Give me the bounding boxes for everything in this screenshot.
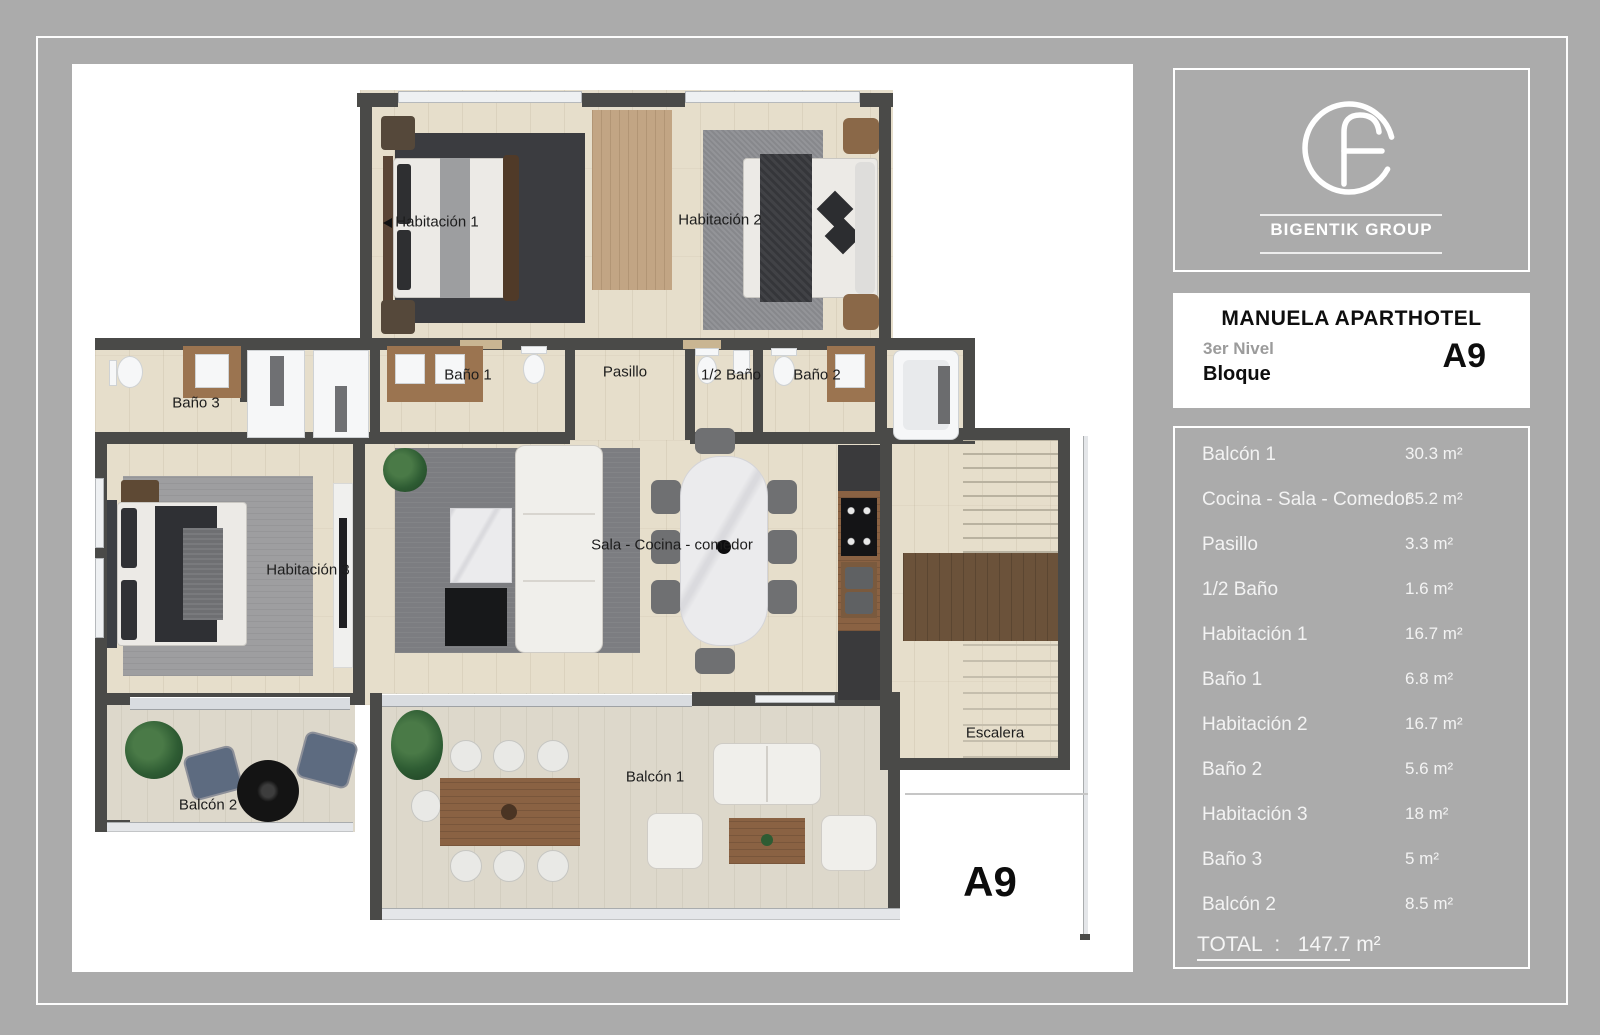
outdoor-dining-chair-1 xyxy=(450,740,482,772)
area-row-value: 3.3 m² xyxy=(1405,534,1453,554)
wall-wing-left xyxy=(360,93,372,345)
wall-bano1-right xyxy=(565,350,575,440)
room-label-escalera: Escalera xyxy=(966,725,1024,742)
bed3-throw xyxy=(183,528,223,620)
area-row-label: Baño 1 xyxy=(1202,669,1262,691)
outdoor-dining-chair-6 xyxy=(537,850,569,882)
toilet-bano2-bowl xyxy=(773,356,795,386)
wall-hab3-right xyxy=(353,440,365,693)
area-row-value: 16.7 m² xyxy=(1405,624,1463,644)
project-title: MANUELA APARTHOTEL xyxy=(1175,307,1528,331)
room-label-balcon2: Balcón 2 xyxy=(179,797,237,814)
room-label-bano3: Baño 3 xyxy=(172,395,220,412)
area-table: Balcón 1 30.3 m² Cocina - Sala - Comedor… xyxy=(1173,426,1530,969)
area-row-habitacion3: Habitación 3 18 m² xyxy=(1175,804,1528,828)
plant-balcon2 xyxy=(125,721,183,779)
room-label-bano2: Baño 2 xyxy=(793,367,841,384)
room-label-bano1: Baño 1 xyxy=(444,367,492,384)
area-row-label: Habitación 2 xyxy=(1202,714,1308,736)
kitchen-counter-top xyxy=(838,445,880,491)
window-hab3-b xyxy=(95,558,104,638)
dining-chair-right-1 xyxy=(767,480,797,514)
level-label: 3er Nivel xyxy=(1203,339,1274,359)
chair-hab2-top xyxy=(843,118,879,154)
sliding-door-balcon1 xyxy=(382,694,692,707)
wall-pasillo-right xyxy=(685,350,695,440)
brand-logo-box: BIGENTIK GROUP xyxy=(1173,68,1530,272)
area-total-unit: m² xyxy=(1350,933,1380,956)
sofa-cushion-line-b xyxy=(523,580,595,582)
rail-balcon1 xyxy=(382,908,900,920)
logo-rule-bottom xyxy=(1260,252,1442,254)
logo-rule-top xyxy=(1260,214,1442,216)
coffee-table-marble xyxy=(450,508,512,583)
title-block: MANUELA APARTHOTEL 3er Nivel Bloque A9 xyxy=(1173,293,1530,408)
area-row-value: 30.3 m² xyxy=(1405,444,1463,464)
sofa-cushion-line-a xyxy=(523,513,595,515)
wall-stairs-right xyxy=(1058,428,1070,770)
rail-exterior-right xyxy=(1083,436,1088,936)
door-marker-hab1 xyxy=(383,218,392,228)
sofa-sala xyxy=(515,445,603,653)
outdoor-dining-chair-2 xyxy=(493,740,525,772)
nightstand-hab1-bottom xyxy=(381,300,415,334)
wall-balcon2-left xyxy=(95,700,107,795)
dining-chair-right-3 xyxy=(767,580,797,614)
toilet-bano3-bowl xyxy=(117,356,143,388)
plant-balcon1 xyxy=(391,710,443,780)
stairs-landing-wood xyxy=(903,553,1058,641)
area-row-label: Habitación 3 xyxy=(1202,804,1308,826)
nightstand-hab1-top xyxy=(381,116,415,150)
dining-chair-right-2 xyxy=(767,530,797,564)
shower-1-towel xyxy=(270,356,284,406)
room-label-balcon1: Balcón 1 xyxy=(626,769,684,786)
rail-balcon2 xyxy=(107,822,353,832)
outdoor-sofa-split xyxy=(766,746,768,802)
room-label-pasillo: Pasillo xyxy=(603,364,647,381)
outdoor-coffee-plant xyxy=(761,834,773,846)
toilet-bano2-tank xyxy=(771,348,797,356)
round-table-decor xyxy=(257,780,279,802)
area-row-value: 8.5 m² xyxy=(1405,894,1453,914)
area-row-label: Pasillo xyxy=(1202,534,1258,556)
area-row-label: Cocina - Sala - Comedor xyxy=(1202,489,1411,511)
bed1-footbench xyxy=(503,155,519,301)
area-row-value: 5.6 m² xyxy=(1405,759,1453,779)
area-row-balcon1: Balcón 1 30.3 m² xyxy=(1175,444,1528,468)
area-total-underlined: TOTAL : 147.7 xyxy=(1197,933,1350,961)
kitchen-sink-basin-a xyxy=(845,567,873,589)
kitchen-stove xyxy=(841,498,877,556)
bed2-blanket xyxy=(760,154,812,302)
area-total-value: 147.7 xyxy=(1298,933,1351,956)
wall-bano2-right xyxy=(875,350,887,440)
floor-plan: Habitación 1 Habitación 2 Baño 1 Pasillo… xyxy=(95,88,1100,944)
drawing-sheet: Habitación 1 Habitación 2 Baño 1 Pasillo… xyxy=(72,64,1133,972)
window-balcon1 xyxy=(755,695,835,703)
area-row-value: 35.2 m² xyxy=(1405,489,1463,509)
area-row-bano1: Baño 1 6.8 m² xyxy=(1175,669,1528,693)
wall-balcon1-left xyxy=(370,693,382,920)
room-label-habitacion2: Habitación 2 xyxy=(678,212,761,229)
wall-mediobano-right xyxy=(753,350,763,440)
wall-wing-right xyxy=(879,93,891,345)
unit-code-label: A9 xyxy=(963,858,1017,906)
outdoor-dining-chair-7 xyxy=(411,790,441,822)
outdoor-armchair-left xyxy=(647,813,703,869)
toilet-bano3-tank xyxy=(109,360,117,386)
kitchen-counter-bottom xyxy=(838,631,880,700)
bed3-pillow-bottom xyxy=(121,580,137,640)
area-row-habitacion2: Habitación 2 16.7 m² xyxy=(1175,714,1528,738)
area-row-value: 6.8 m² xyxy=(1405,669,1453,689)
area-row-label: Balcón 1 xyxy=(1202,444,1276,466)
outdoor-table-centerpiece xyxy=(501,804,517,820)
wall-top-mid xyxy=(582,93,685,107)
window-hab3-a xyxy=(95,478,104,548)
window-habitacion1 xyxy=(398,91,582,103)
area-row-value: 5 m² xyxy=(1405,849,1439,869)
outdoor-armchair-right xyxy=(821,815,877,871)
plan-sheet-page: { "brand": { "name": "BIGENTIK GROUP" },… xyxy=(0,0,1600,1035)
rail-end-tick xyxy=(1080,934,1090,940)
wall-balcon1-right xyxy=(888,693,900,920)
area-row-mediobano: 1/2 Baño 1.6 m² xyxy=(1175,579,1528,603)
outdoor-dining-chair-3 xyxy=(537,740,569,772)
dining-chair-bottom xyxy=(695,648,735,674)
bed2-bolster xyxy=(855,162,875,294)
bathtub-towel xyxy=(938,366,950,424)
area-row-bano3: Baño 3 5 m² xyxy=(1175,849,1528,873)
area-row-label: Baño 2 xyxy=(1202,759,1262,781)
sink-bano3 xyxy=(195,354,229,388)
bed3-pillow-top xyxy=(121,508,137,568)
room-label-mediobano: 1/2 Baño xyxy=(701,367,761,384)
area-row-habitacion1: Habitación 1 16.7 m² xyxy=(1175,624,1528,648)
toilet-bano1-bowl xyxy=(523,354,545,384)
dining-chair-left-1 xyxy=(651,480,681,514)
outdoor-dining-chair-5 xyxy=(493,850,525,882)
room-label-habitacion1: Habitación 1 xyxy=(395,214,478,231)
dining-chair-top xyxy=(695,428,735,454)
area-total-row: TOTAL : 147.7 m² xyxy=(1197,933,1381,957)
shower-2-towel xyxy=(335,386,347,432)
brand-name: BIGENTIK GROUP xyxy=(1175,220,1528,240)
area-total-label: TOTAL xyxy=(1197,933,1263,956)
block-word: Bloque xyxy=(1203,363,1271,386)
wall-stairs-bottom xyxy=(880,758,1070,770)
toilet-bano1-tank xyxy=(521,346,547,354)
toilet-mediobano-tank xyxy=(695,348,719,356)
outdoor-dining-chair-4 xyxy=(450,850,482,882)
area-row-pasillo: Pasillo 3.3 m² xyxy=(1175,534,1528,558)
bed3-headboard xyxy=(107,500,117,648)
chair-hab2-bottom xyxy=(843,294,879,330)
dining-chair-left-3 xyxy=(651,580,681,614)
kitchen-sink-basin-b xyxy=(845,592,873,614)
area-row-label: Balcón 2 xyxy=(1202,894,1276,916)
room-label-sala: Sala - Cocina - comedor xyxy=(591,537,753,554)
area-total-separator: : xyxy=(1274,933,1280,956)
stairs-treads-upper xyxy=(963,440,1058,553)
area-row-value: 1.6 m² xyxy=(1405,579,1453,599)
area-row-value: 18 m² xyxy=(1405,804,1448,824)
sink-bano1-a xyxy=(395,354,425,384)
area-row-label: Habitación 1 xyxy=(1202,624,1308,646)
area-row-label: Baño 3 xyxy=(1202,849,1262,871)
block-code: A9 xyxy=(1443,337,1486,376)
a9-area-top-line xyxy=(905,793,1088,795)
area-row-balcon2: Balcón 2 8.5 m² xyxy=(1175,894,1528,918)
plant-sala xyxy=(383,448,427,492)
coffee-table-black xyxy=(445,588,507,646)
bed1-headboard xyxy=(383,156,393,301)
brand-logo-icon xyxy=(1297,96,1401,200)
area-row-bano2: Baño 2 5.6 m² xyxy=(1175,759,1528,783)
room-label-habitacion3: Habitación 3 xyxy=(266,562,349,579)
bed1-pillow-bottom xyxy=(397,230,411,290)
area-row-cocina-sala-comedor: Cocina - Sala - Comedor 35.2 m² xyxy=(1175,489,1528,513)
area-row-label: 1/2 Baño xyxy=(1202,579,1278,601)
window-habitacion2 xyxy=(685,91,860,103)
wall-stalls-right xyxy=(370,350,380,440)
area-row-value: 16.7 m² xyxy=(1405,714,1463,734)
closet-wardrobe xyxy=(592,110,672,290)
sliding-door-balcon2 xyxy=(130,697,350,710)
